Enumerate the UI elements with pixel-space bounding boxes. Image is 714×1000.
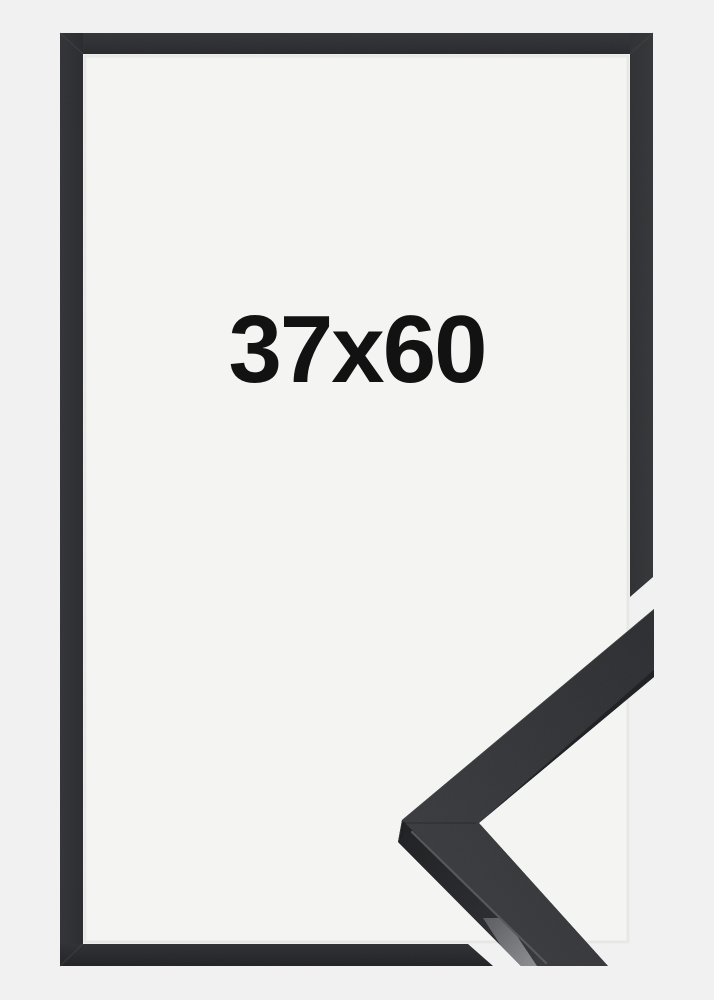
frame-illustration bbox=[0, 0, 714, 1000]
frame-inner-area bbox=[83, 54, 630, 944]
size-label: 37x60 bbox=[0, 302, 714, 398]
frame-product-photo: 37x60 bbox=[0, 0, 714, 1000]
